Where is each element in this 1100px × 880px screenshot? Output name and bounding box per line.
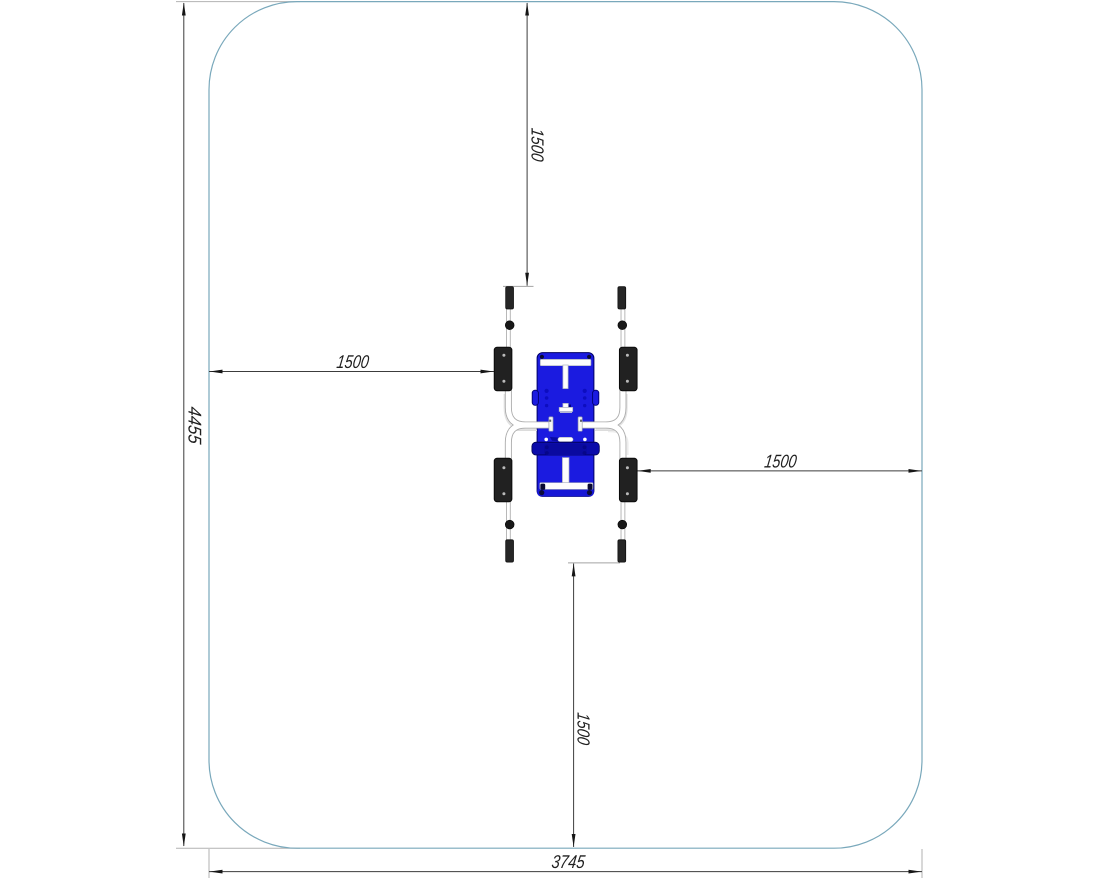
svg-text:1500: 1500 (763, 451, 798, 472)
svg-text:1500: 1500 (573, 711, 593, 746)
svg-text:4455: 4455 (184, 405, 205, 446)
svg-text:3745: 3745 (550, 851, 586, 872)
svg-text:1500: 1500 (335, 351, 370, 372)
svg-text:1500: 1500 (528, 127, 548, 163)
